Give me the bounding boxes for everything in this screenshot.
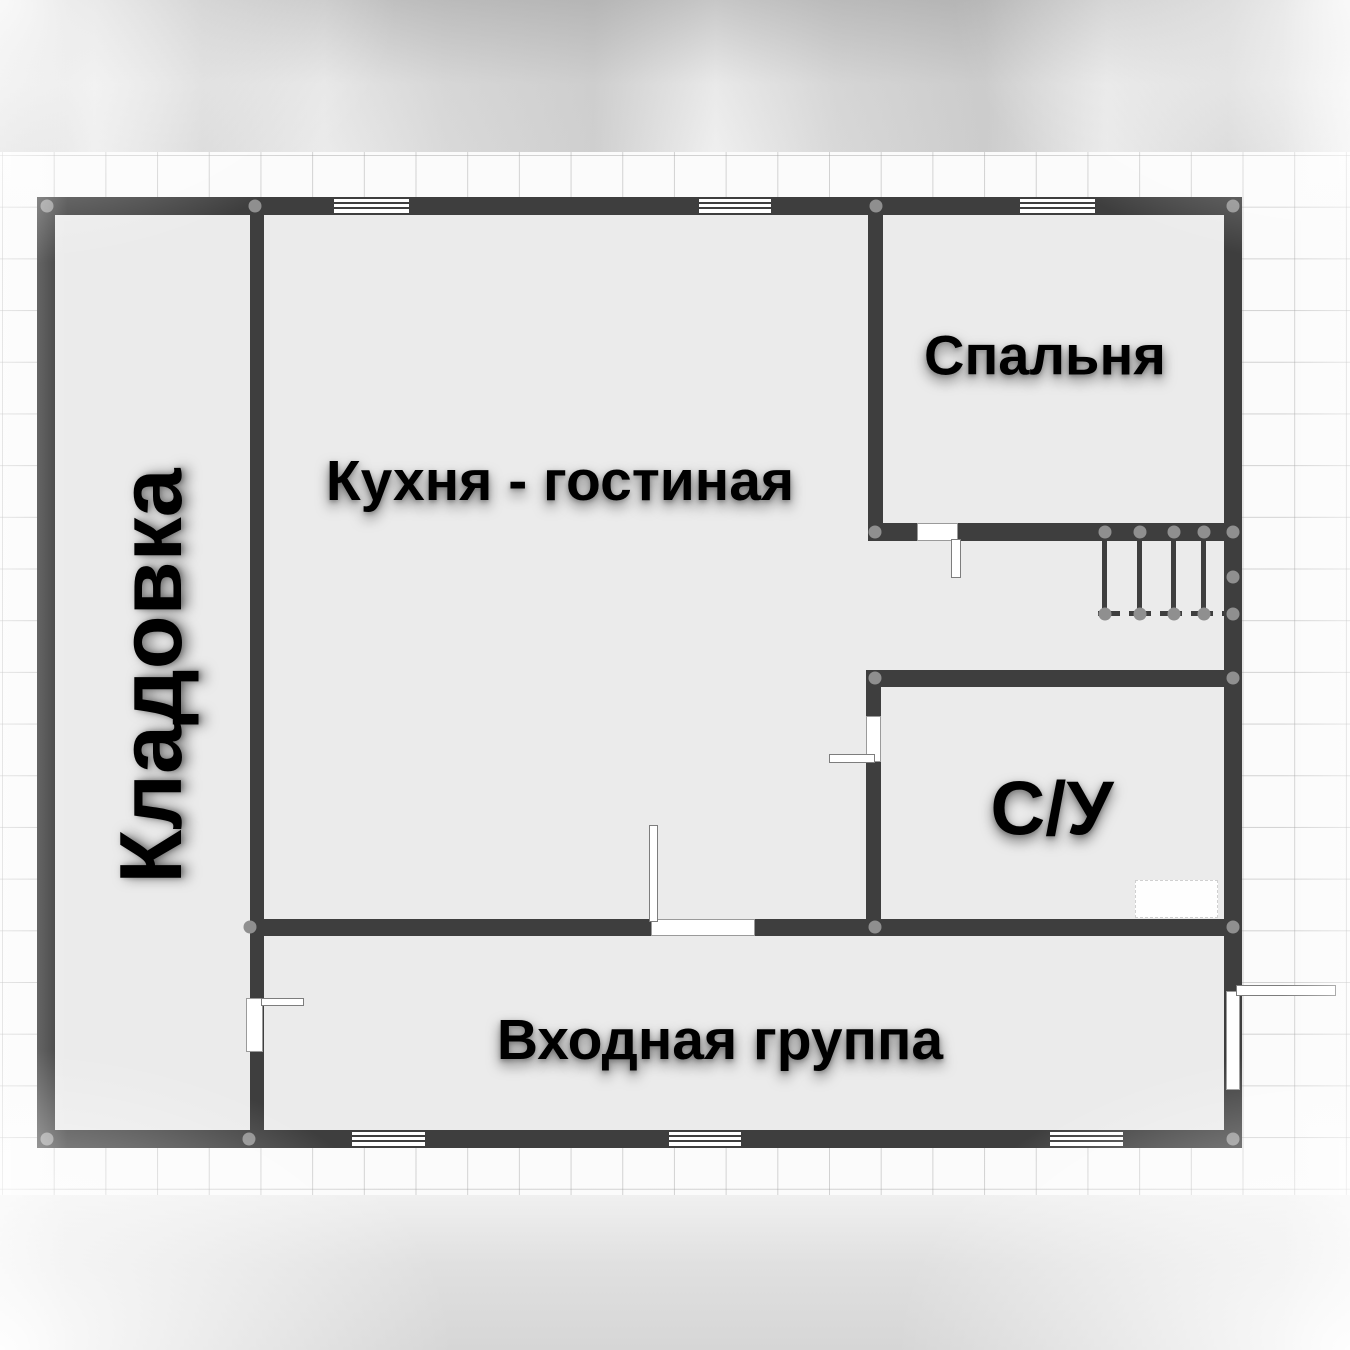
junction-dot (1227, 571, 1240, 584)
junction-dot (1198, 526, 1211, 539)
window-top-3 (1018, 197, 1097, 215)
window-bottom-2 (667, 1130, 743, 1148)
junction-dot (1168, 526, 1181, 539)
junction-dot (1099, 608, 1112, 621)
bathroom-fixture (1135, 880, 1218, 918)
junction-dot (243, 1133, 256, 1146)
window-top-1 (332, 197, 411, 215)
room-label-kitchen-living: Кухня - гостиная (326, 448, 794, 514)
junction-dot (41, 200, 54, 213)
junction-dot (244, 921, 257, 934)
floor-plan: Кладовка Кухня - гостиная Спальня С/У Вх… (0, 0, 1350, 1350)
stair-stringer (1171, 541, 1176, 615)
junction-dot (1168, 608, 1181, 621)
junction-dot (1227, 1133, 1240, 1146)
door-bedroom-leaf (951, 539, 961, 578)
junction-dot (1227, 608, 1240, 621)
window-top-2 (697, 197, 773, 215)
junction-dot (1198, 608, 1211, 621)
window-bottom-3 (1048, 1130, 1125, 1148)
junction-dot (869, 526, 882, 539)
junction-dot (1134, 526, 1147, 539)
window-bottom-1 (350, 1130, 427, 1148)
stair-stringer (1201, 541, 1206, 615)
wall-bedroom-left (868, 197, 883, 541)
junction-dot (869, 672, 882, 685)
junction-dot (1099, 526, 1112, 539)
door-bathroom-leaf (829, 754, 875, 763)
junction-dot (1227, 526, 1240, 539)
junction-dot (41, 1133, 54, 1146)
junction-dot (1134, 608, 1147, 621)
room-label-bathroom: С/У (990, 766, 1113, 853)
wall-bathroom-left (866, 670, 881, 936)
door-entrance-leaf (1236, 985, 1336, 996)
outer-wall-left (37, 197, 55, 1148)
door-kladovka-opening (246, 998, 263, 1052)
junction-dot (1227, 200, 1240, 213)
wall-bathroom-top (866, 670, 1242, 687)
room-label-entrance: Входная группа (497, 1007, 943, 1073)
door-kitchen-leaf (649, 825, 658, 922)
room-label-bedroom: Спальня (924, 323, 1166, 388)
junction-dot (1227, 672, 1240, 685)
stair-stringer (1102, 541, 1107, 615)
junction-dot (870, 200, 883, 213)
room-label-kladovka: Кладовка (100, 468, 202, 883)
junction-dot (1227, 921, 1240, 934)
door-kladovka-leaf (261, 998, 304, 1006)
junction-dot (869, 921, 882, 934)
door-kitchen-opening (651, 919, 755, 936)
stair-stringer (1137, 541, 1142, 615)
door-entrance-opening (1226, 991, 1240, 1090)
junction-dot (249, 200, 262, 213)
